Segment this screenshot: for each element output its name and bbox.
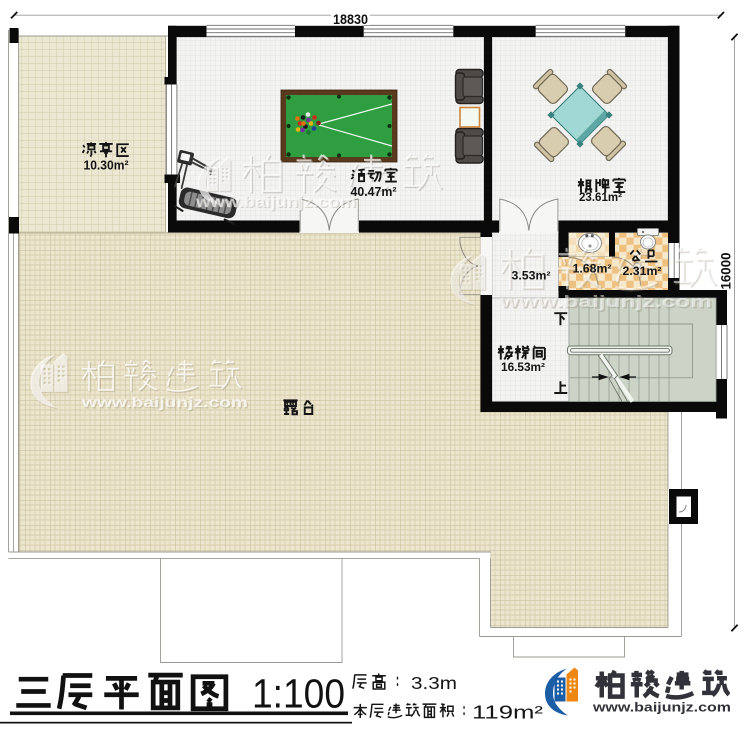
svg-text:10.30m²: 10.30m² bbox=[84, 159, 129, 173]
svg-text:18830: 18830 bbox=[333, 12, 368, 27]
svg-text:3.53m²: 3.53m² bbox=[512, 271, 551, 283]
svg-text:www.baijunjz.com: www.baijunjz.com bbox=[499, 292, 712, 311]
svg-text:www.baijunjz.com: www.baijunjz.com bbox=[195, 194, 356, 211]
svg-text:40.47m²: 40.47m² bbox=[351, 184, 398, 199]
svg-text:www.baijunjz.com: www.baijunjz.com bbox=[592, 700, 731, 715]
svg-text:2.31m²: 2.31m² bbox=[623, 266, 662, 278]
svg-text:23.61m²: 23.61m² bbox=[579, 192, 622, 204]
svg-text:1:100: 1:100 bbox=[252, 671, 345, 717]
svg-text:www.baijunjz.com: www.baijunjz.com bbox=[81, 395, 248, 410]
svg-text:16000: 16000 bbox=[719, 253, 734, 290]
svg-text:16.53m²: 16.53m² bbox=[501, 362, 545, 374]
svg-text:1.68m²: 1.68m² bbox=[573, 264, 612, 276]
svg-text:3.3m: 3.3m bbox=[411, 673, 457, 693]
svg-text:119m²: 119m² bbox=[472, 703, 543, 723]
